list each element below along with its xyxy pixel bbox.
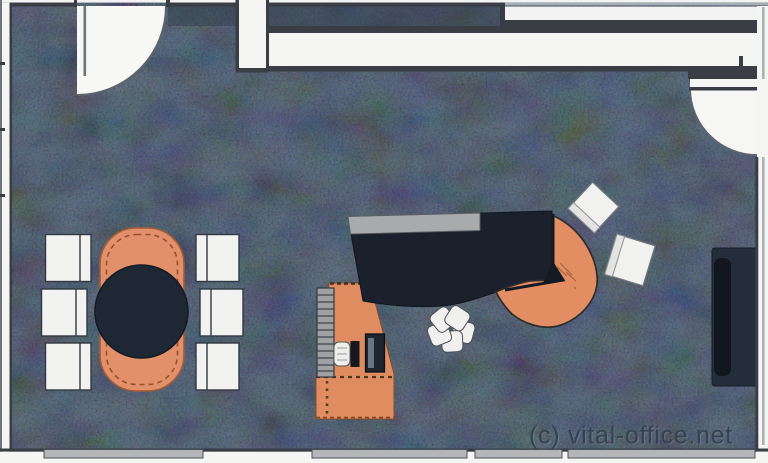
svg-text:(c) vital-office.net: (c) vital-office.net — [529, 422, 733, 450]
